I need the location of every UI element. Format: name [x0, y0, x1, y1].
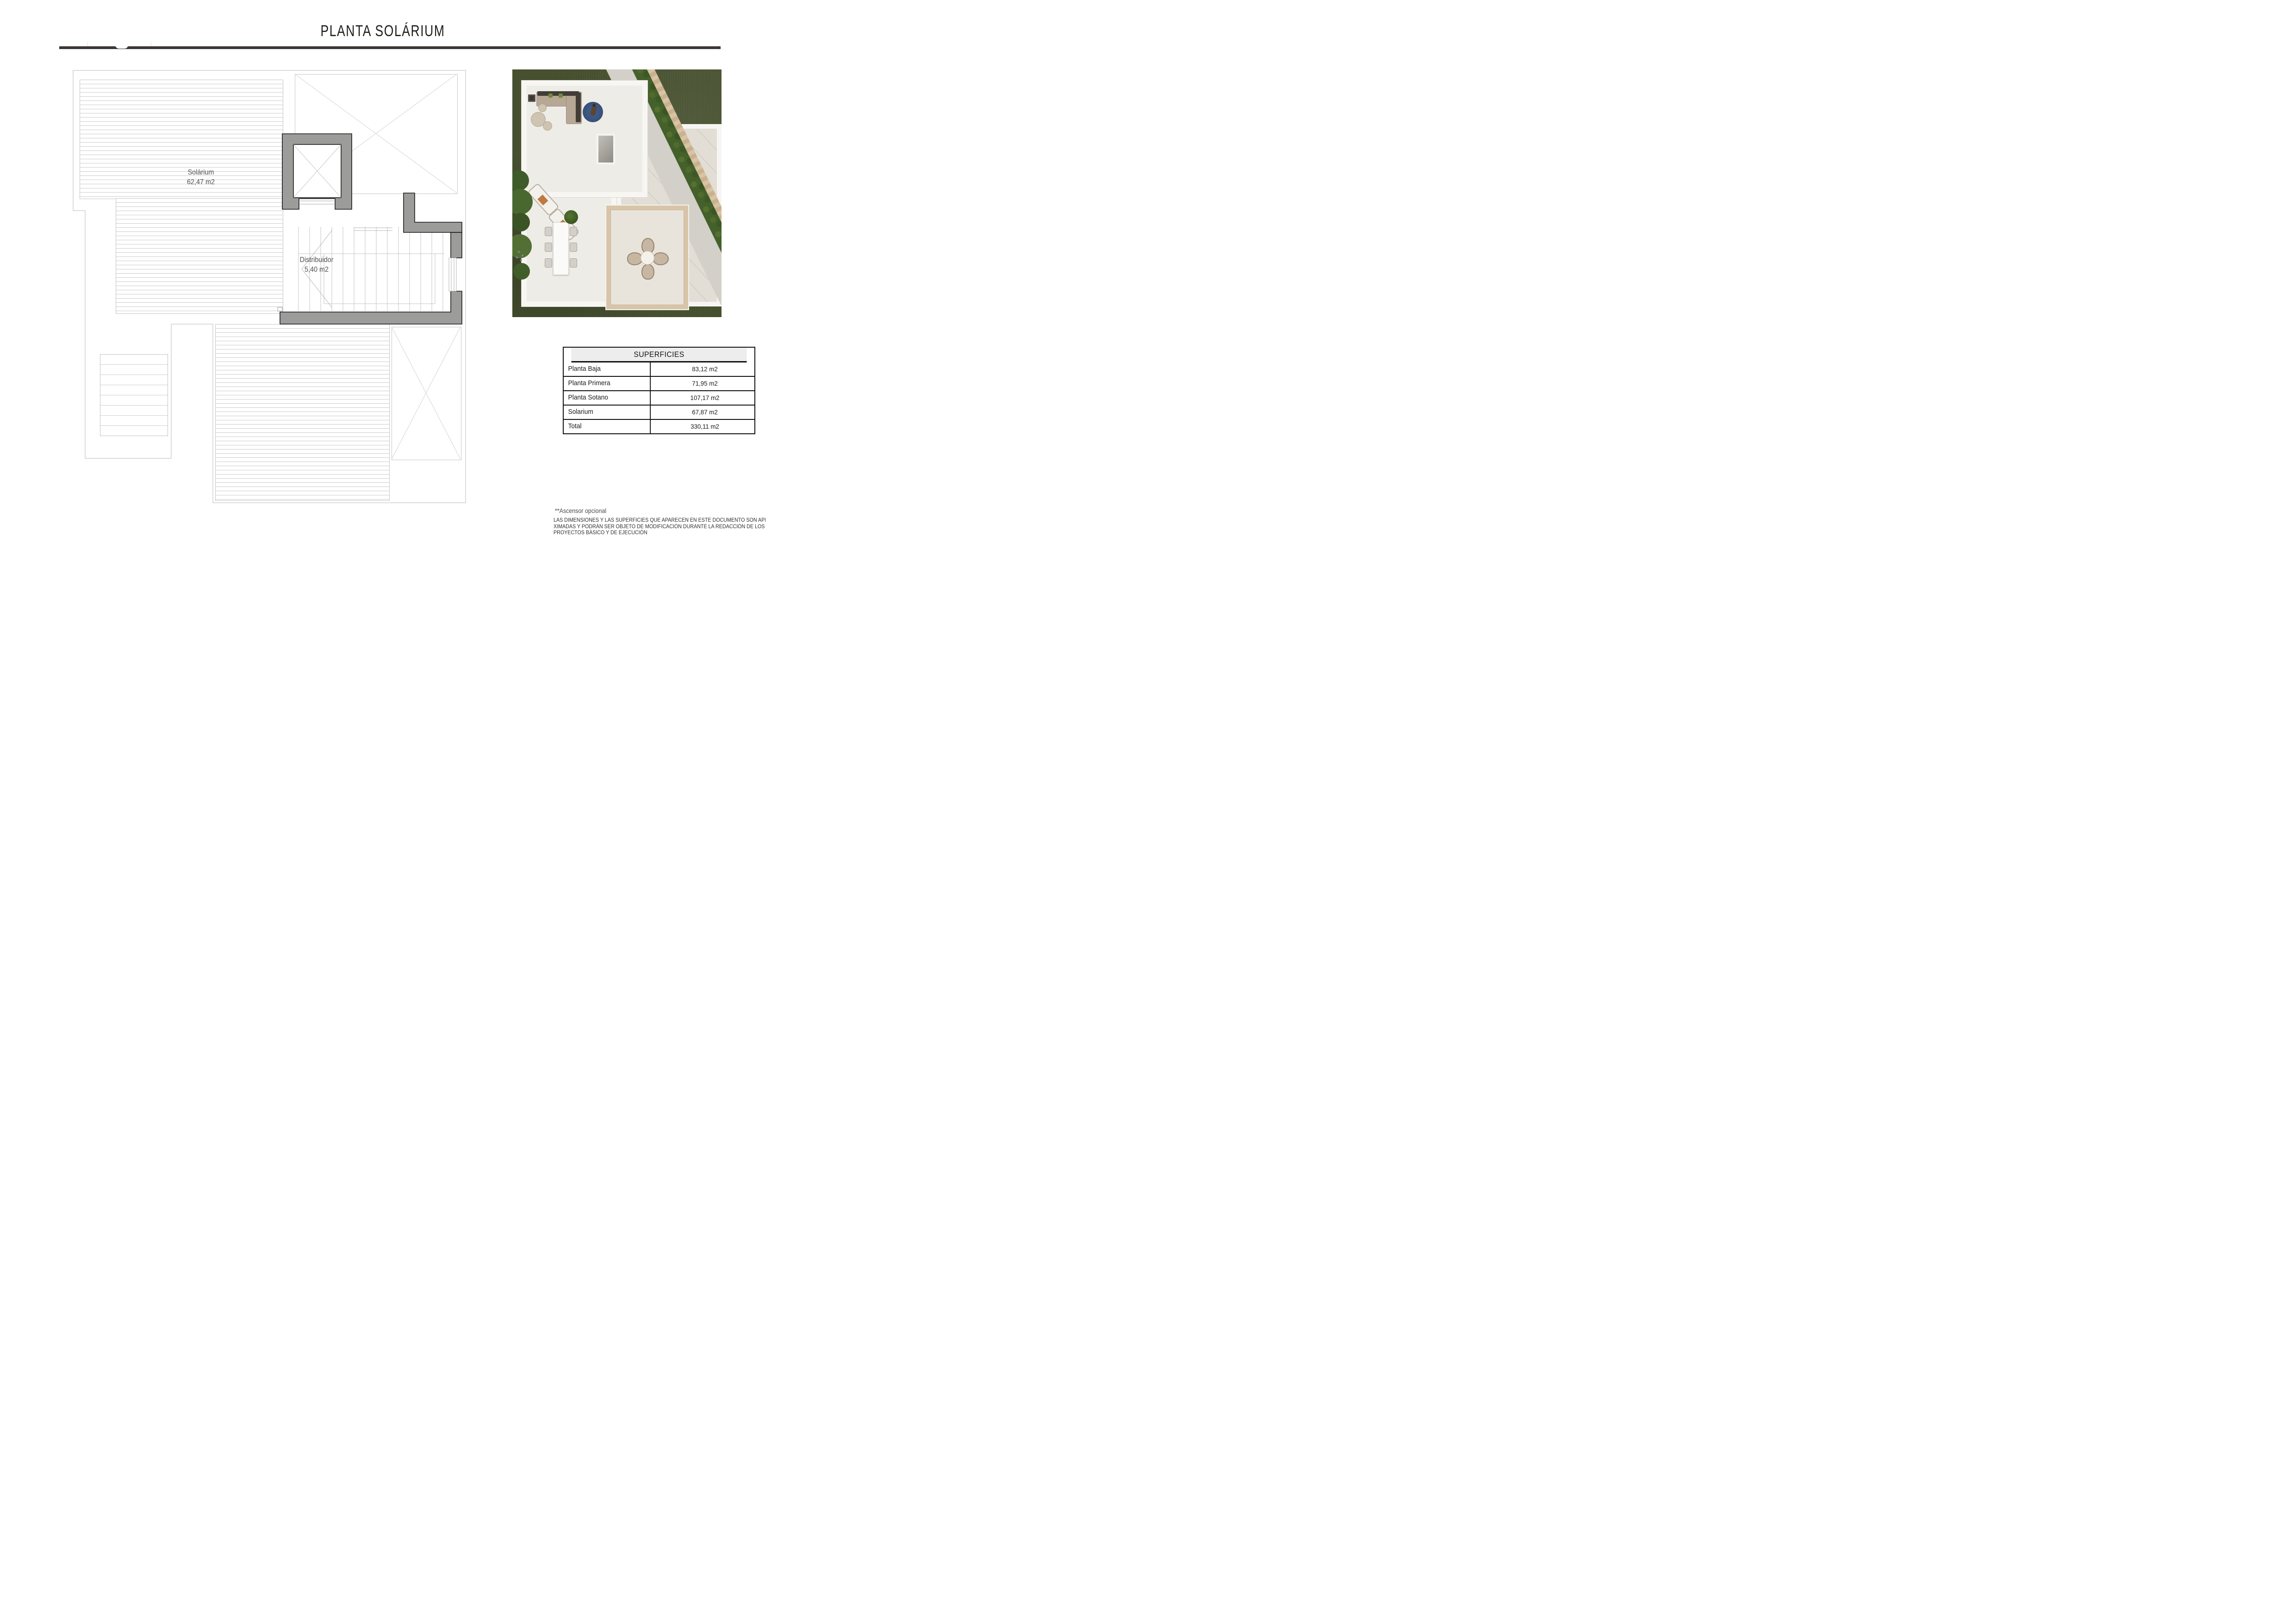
- solarium-room-name: Solárium: [168, 168, 234, 177]
- dining-chair: [545, 243, 552, 252]
- patio-chair: [653, 252, 669, 265]
- table-row: Planta Sotano 107,17 m2: [564, 391, 754, 406]
- solarium-room-area: 62,47 m2: [168, 177, 234, 187]
- row-value: 330,11 m2: [658, 420, 752, 433]
- lavender-flower: [520, 259, 522, 261]
- courtyard-lightwell: [597, 134, 615, 164]
- disclaimer-line: LAS DIMENSIONES Y LAS SUPERFICIES QUE AP…: [554, 518, 765, 524]
- distribuidor-room-name: Distribuidor: [281, 255, 352, 265]
- row-label: Planta Sotano: [564, 391, 651, 405]
- table-row: Total 330,11 m2: [564, 420, 754, 433]
- dining-chair: [545, 227, 552, 236]
- solarium-room-label: Solárium 62,47 m2: [168, 168, 234, 187]
- terrace-wing: [522, 185, 616, 306]
- row-label: Planta Primera: [564, 377, 651, 390]
- dining-chair: [570, 243, 577, 252]
- aerial-render: [512, 69, 722, 317]
- patio-chair: [641, 264, 654, 280]
- sofa-cushions: [537, 91, 579, 96]
- patio-table: [641, 251, 654, 265]
- elevator-note: **Ascensor opcional: [555, 507, 606, 514]
- dining-chair: [545, 258, 552, 268]
- dining-chair: [570, 258, 577, 268]
- person-head: [592, 104, 596, 107]
- table-row: Solarium 67,87 m2: [564, 406, 754, 420]
- sofa-cushions-side: [576, 93, 581, 122]
- pouf-small: [543, 121, 552, 131]
- distribuidor-room-area: 5,40 m2: [281, 265, 352, 275]
- row-value: 67,87 m2: [658, 406, 752, 419]
- lavender-flower: [522, 255, 523, 256]
- row-value: 107,17 m2: [658, 391, 752, 405]
- potted-plant: [564, 210, 578, 224]
- dining-chair: [570, 227, 577, 236]
- row-label: Solarium: [564, 406, 651, 419]
- surfaces-table: SUPERFICIES Planta Baja 83,12 m2 Planta …: [563, 347, 755, 434]
- disclaimer-line: PROYECTOS BÁSICO Y DE EJECUCIÓN: [554, 530, 765, 537]
- row-label: Total: [564, 420, 651, 433]
- row-label: Planta Baja: [564, 362, 651, 376]
- disclaimer-line: XIMADAS Y PODRÁN SER OBJETO DE MODIFICAC…: [554, 524, 765, 531]
- disclaimer-text: LAS DIMENSIONES Y LAS SUPERFICIES QUE AP…: [554, 518, 765, 537]
- side-table: [528, 94, 535, 102]
- green-pillow: [559, 94, 563, 98]
- row-value: 71,95 m2: [658, 377, 752, 390]
- towel: [537, 194, 548, 205]
- surfaces-table-title: SUPERFICIES: [571, 348, 747, 362]
- lavender-flower: [518, 251, 520, 253]
- table-row: Planta Primera 71,95 m2: [564, 377, 754, 391]
- pouf-small: [538, 104, 547, 112]
- lavender-flower: [516, 256, 518, 258]
- row-value: 83,12 m2: [658, 362, 752, 376]
- dining-table: [553, 222, 569, 275]
- document-page: PLANTA SOLÁRIUM: [0, 0, 765, 541]
- garden-bush: [513, 263, 530, 280]
- green-pillow: [548, 94, 553, 98]
- table-row: Planta Baja 83,12 m2: [564, 362, 754, 377]
- distribuidor-room-label: Distribuidor 5,40 m2: [281, 255, 352, 275]
